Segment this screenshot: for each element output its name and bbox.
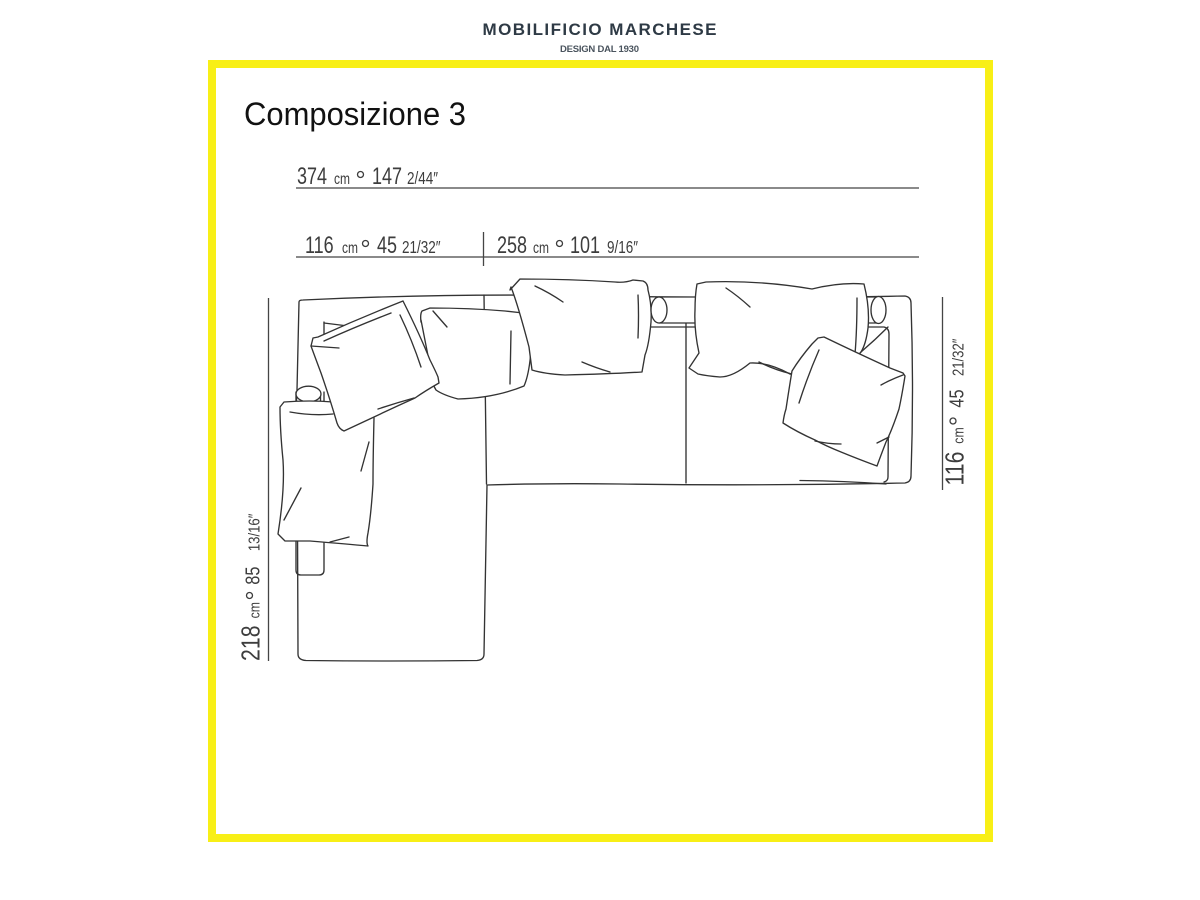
svg-text:DESIGN DAL 1930: DESIGN DAL 1930: [560, 44, 639, 55]
svg-text:cm: cm: [246, 602, 262, 618]
svg-text:21/32″: 21/32″: [950, 339, 967, 376]
svg-text:cm: cm: [533, 238, 549, 256]
svg-text:13/16″: 13/16″: [246, 514, 263, 551]
svg-text:9/16″: 9/16″: [607, 238, 638, 257]
svg-text:cm: cm: [342, 238, 358, 256]
svg-text:cm: cm: [334, 169, 350, 187]
svg-text:116: 116: [305, 233, 334, 259]
svg-text:374: 374: [297, 164, 327, 190]
svg-text:85: 85: [241, 567, 264, 585]
svg-text:101: 101: [570, 233, 600, 259]
svg-text:45: 45: [945, 389, 968, 407]
svg-text:116: 116: [941, 452, 971, 486]
svg-text:218: 218: [237, 625, 267, 661]
svg-text:147: 147: [372, 164, 402, 190]
svg-text:2/44″: 2/44″: [407, 169, 438, 188]
svg-text:45: 45: [377, 233, 397, 259]
svg-text:cm: cm: [950, 427, 966, 443]
svg-text:21/32″: 21/32″: [402, 238, 441, 257]
svg-text:258: 258: [497, 233, 527, 259]
svg-text:MOBILIFICIO MARCHESE: MOBILIFICIO MARCHESE: [483, 20, 717, 39]
svg-text:Composizione 3: Composizione 3: [244, 96, 466, 132]
